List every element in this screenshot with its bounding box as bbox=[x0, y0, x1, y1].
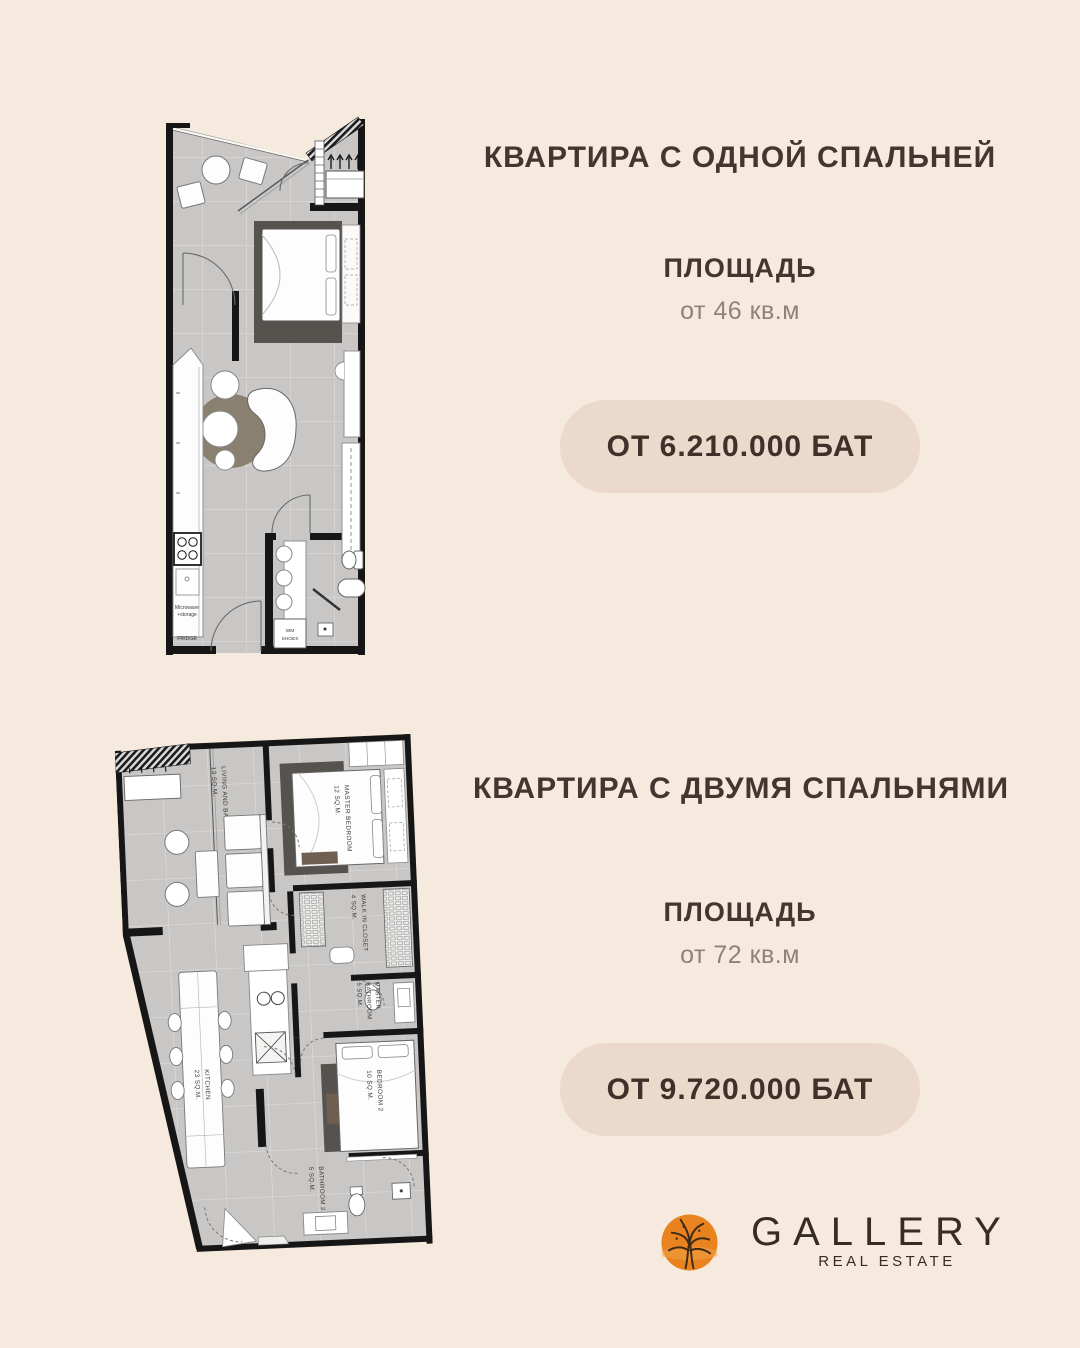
two-bedroom-area-value: от 72 кв.м bbox=[680, 941, 800, 970]
plan2-label-bedroom2-area: 10 SQ.M. bbox=[365, 1070, 373, 1100]
two-bedroom-title: КВАРТИРА С ДВУМЯ СПАЛЬНЯМИ bbox=[473, 772, 1009, 806]
plan1-label-shoes: SHOES bbox=[282, 636, 299, 642]
plan1-stove bbox=[174, 533, 201, 565]
one-bedroom-title: КВАРТИРА С ОДНОЙ СПАЛЬНЕЙ bbox=[484, 141, 996, 175]
two-bedroom-floorplan: LIVING AND BALCONY 13 SQ.M. bbox=[114, 730, 444, 1278]
one-bedroom-price-badge: ОТ 6.210.000 БАТ bbox=[560, 400, 920, 493]
plan1-bathtub bbox=[338, 579, 365, 597]
two-bedroom-area-label: ПЛОЩАДЬ bbox=[663, 897, 816, 928]
plan1-label-wm: WM bbox=[286, 628, 295, 634]
one-bedroom-floorplan: Microwave +storage FRIDGE WM SHOES bbox=[158, 113, 373, 658]
two-bedroom-price-badge: ОТ 9.720.000 БАТ bbox=[560, 1043, 920, 1136]
plan1-label-storage: +storage bbox=[177, 612, 197, 618]
plan2-label-bathroom2-area: 5 SQ.M. bbox=[307, 1167, 315, 1193]
logo-tagline: REAL ESTATE bbox=[751, 1253, 1023, 1270]
plan2-label-master-bath-area: 5 SQ.M. bbox=[355, 982, 362, 1007]
plan1-label-microwave: Microwave bbox=[175, 605, 199, 611]
one-bedroom-area-label: ПЛОЩАДЬ bbox=[663, 253, 816, 284]
plan2-label-master-bedroom-area: 12 SQ.M. bbox=[333, 785, 341, 815]
one-bedroom-area-value: от 46 кв.м bbox=[680, 297, 800, 326]
logo-tree-icon bbox=[660, 1213, 719, 1272]
plan1-kitchen: Microwave +storage FRIDGE bbox=[173, 348, 203, 642]
logo-brand-name: GALLERY bbox=[751, 1210, 1037, 1255]
plan2-label-kitchen: KITCHEN bbox=[203, 1069, 211, 1100]
plan1-label-fridge: FRIDGE bbox=[177, 636, 197, 642]
plan2-label-living-area: 13 SQ.M. bbox=[210, 767, 218, 797]
plan2-label-closet-area: 4 SQ.M. bbox=[349, 895, 357, 921]
flyer-page: КВАРТИРА С ОДНОЙ СПАЛЬНЕЙ ПЛОЩАДЬ от 46 … bbox=[0, 0, 1080, 1348]
plan2-label-kitchen-area: 23 SQ.M. bbox=[193, 1070, 201, 1100]
